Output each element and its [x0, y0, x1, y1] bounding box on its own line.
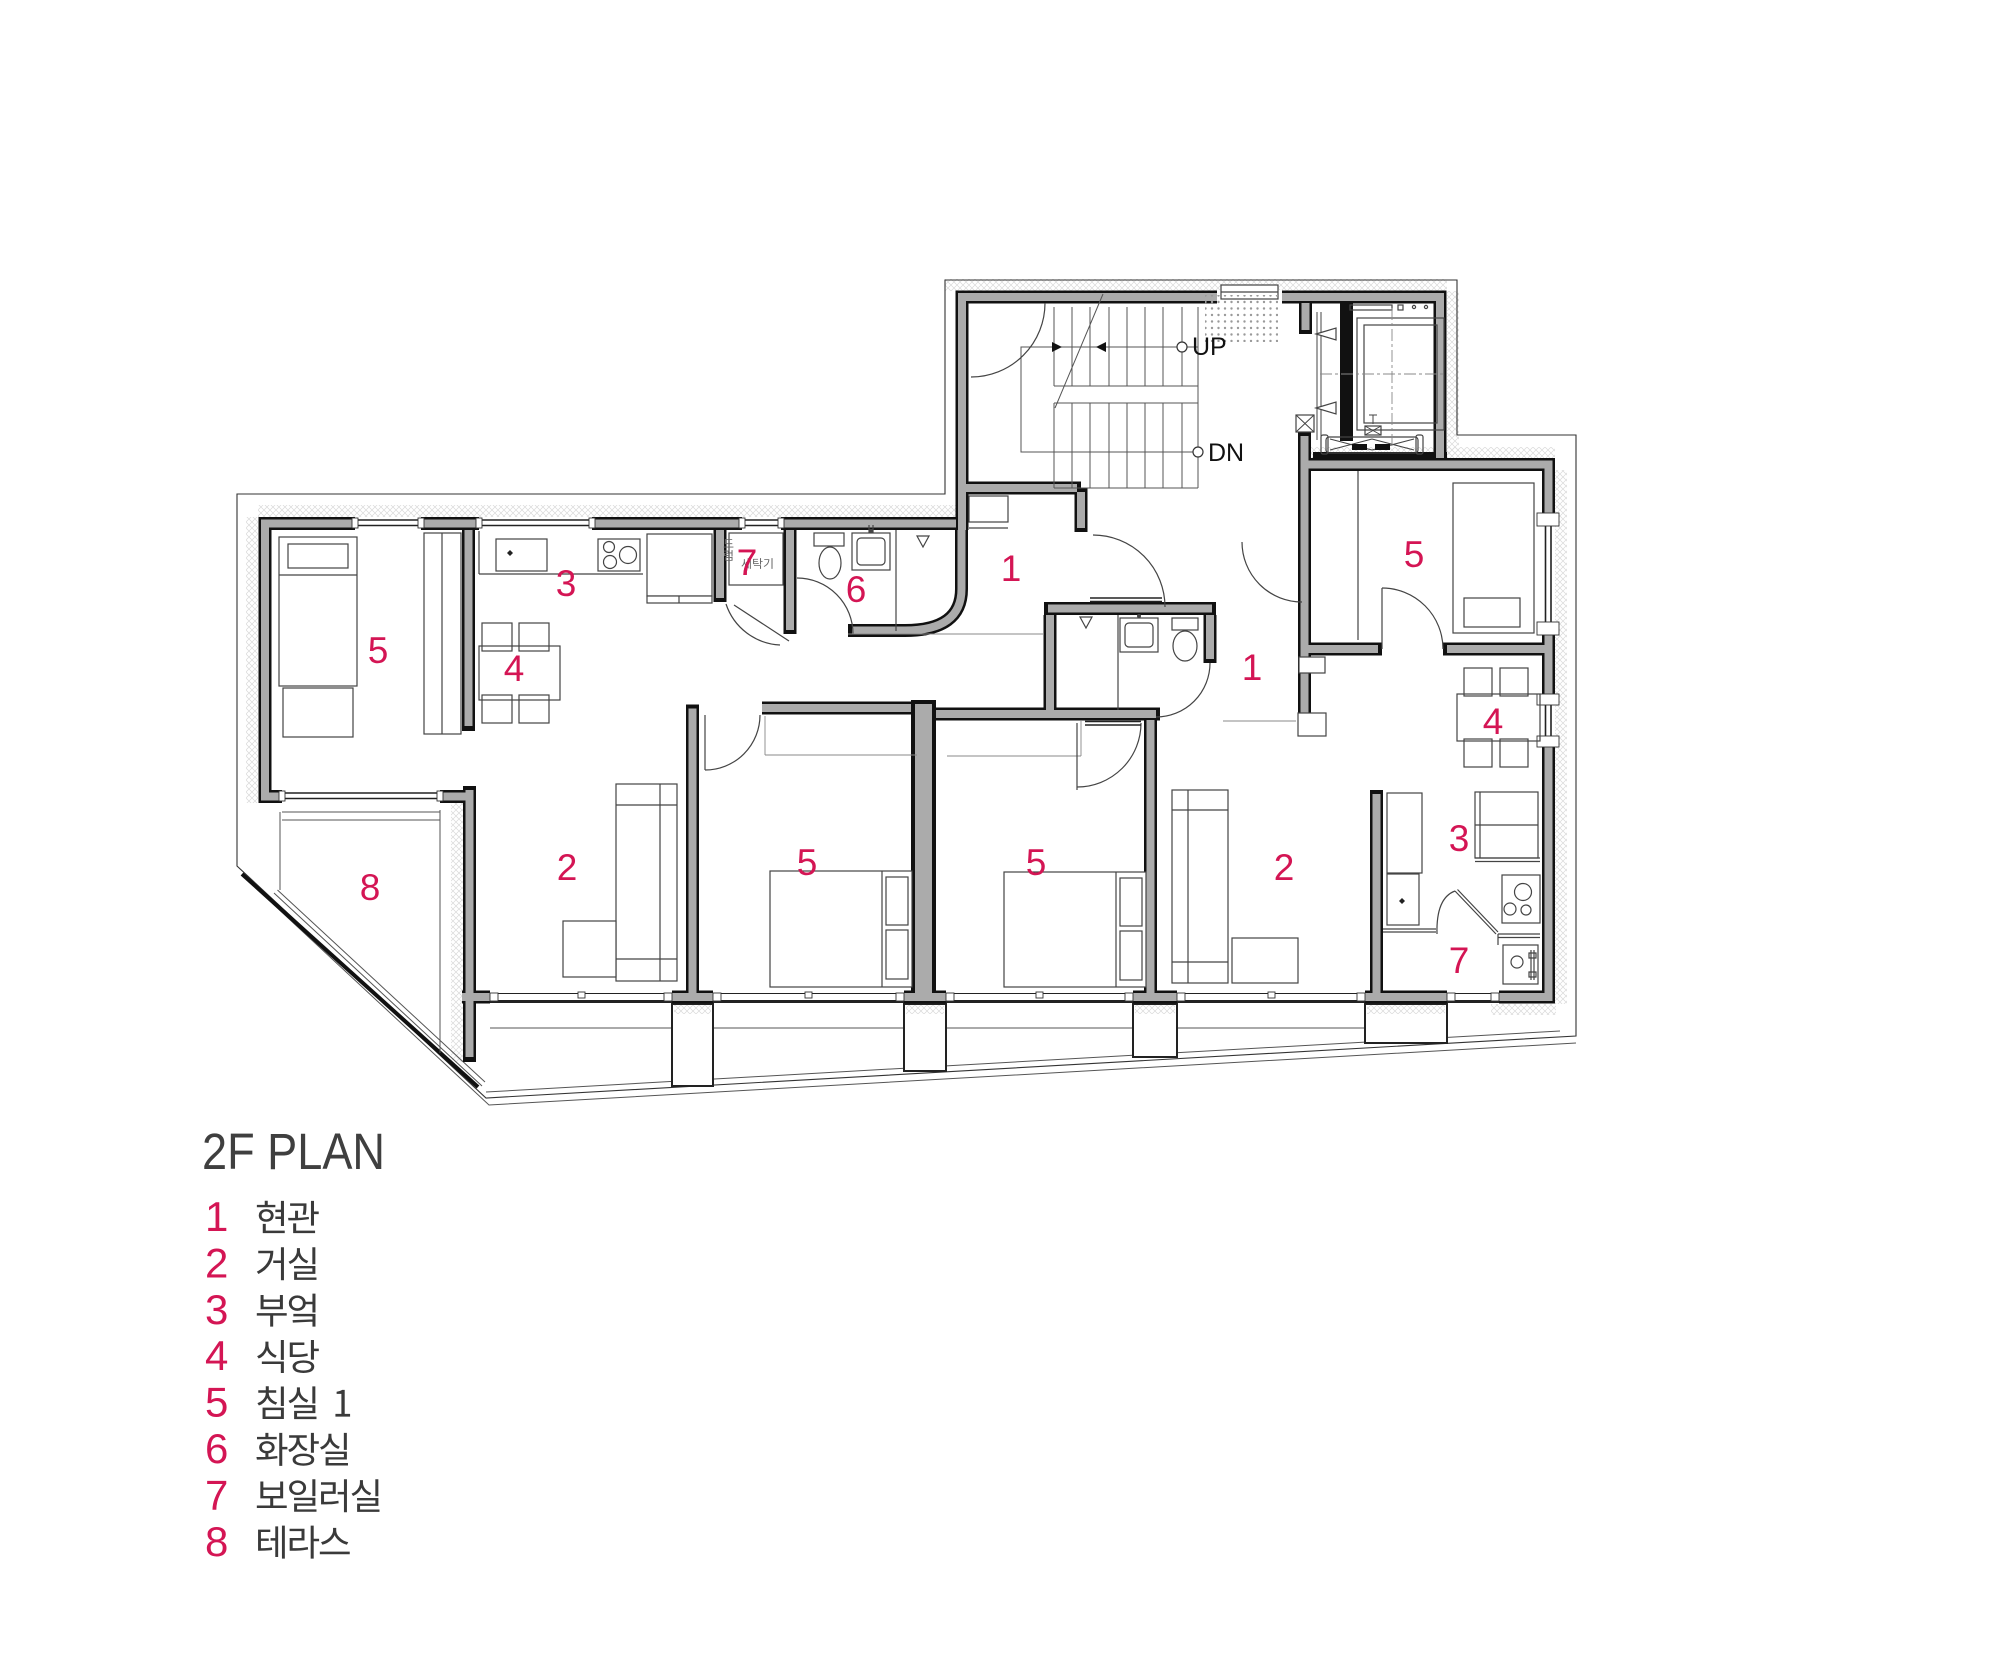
svg-text:8: 8 — [360, 867, 381, 908]
svg-text:7: 7 — [737, 542, 758, 583]
svg-text:6: 6 — [846, 569, 867, 610]
svg-text:3: 3 — [1449, 818, 1470, 859]
svg-text:1: 1 — [1242, 647, 1263, 688]
svg-text:2: 2 — [1274, 847, 1295, 888]
svg-text:DN: DN — [1208, 439, 1244, 467]
svg-text:3: 3 — [205, 1286, 228, 1333]
svg-text:4: 4 — [205, 1332, 228, 1379]
svg-text:7: 7 — [1449, 940, 1470, 981]
svg-text:4: 4 — [504, 648, 525, 689]
svg-text:2: 2 — [205, 1239, 228, 1286]
svg-text:1: 1 — [205, 1193, 228, 1240]
svg-text:3: 3 — [556, 563, 577, 604]
svg-text:5: 5 — [368, 630, 389, 671]
svg-text:5: 5 — [1404, 534, 1425, 575]
svg-text:8: 8 — [205, 1518, 228, 1565]
svg-text:UP: UP — [1192, 333, 1227, 361]
svg-text:1: 1 — [1001, 548, 1022, 589]
svg-text:4: 4 — [1483, 701, 1504, 742]
svg-text:2F PLAN: 2F PLAN — [202, 1123, 385, 1180]
svg-text:5: 5 — [797, 842, 818, 883]
svg-text:5: 5 — [1026, 842, 1047, 883]
svg-text:5: 5 — [205, 1379, 228, 1426]
svg-text:7: 7 — [205, 1471, 228, 1518]
svg-text:2: 2 — [557, 847, 578, 888]
svg-text:6: 6 — [205, 1425, 228, 1472]
